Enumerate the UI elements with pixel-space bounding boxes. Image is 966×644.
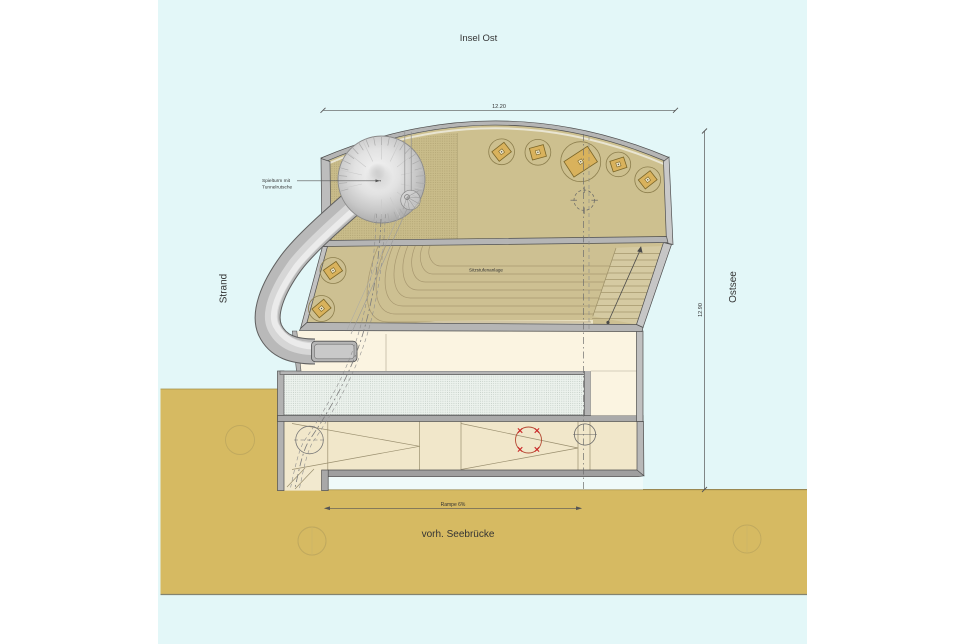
svg-text:12.90: 12.90 [698, 303, 704, 317]
svg-text:Spielturm mit: Spielturm mit [262, 178, 291, 184]
svg-text:vorh. Seebrücke: vorh. Seebrücke [422, 529, 495, 540]
svg-text:Sitzstufenanlage: Sitzstufenanlage [469, 268, 503, 273]
svg-text:Ostsee: Ostsee [728, 271, 739, 303]
svg-text:12.20: 12.20 [492, 104, 506, 110]
svg-text:Rampe 6%: Rampe 6% [441, 502, 466, 508]
svg-text:Strand: Strand [219, 274, 230, 303]
svg-text:Tunnelrutsche: Tunnelrutsche [262, 185, 293, 191]
svg-text:Insel Ost: Insel Ost [460, 33, 498, 44]
